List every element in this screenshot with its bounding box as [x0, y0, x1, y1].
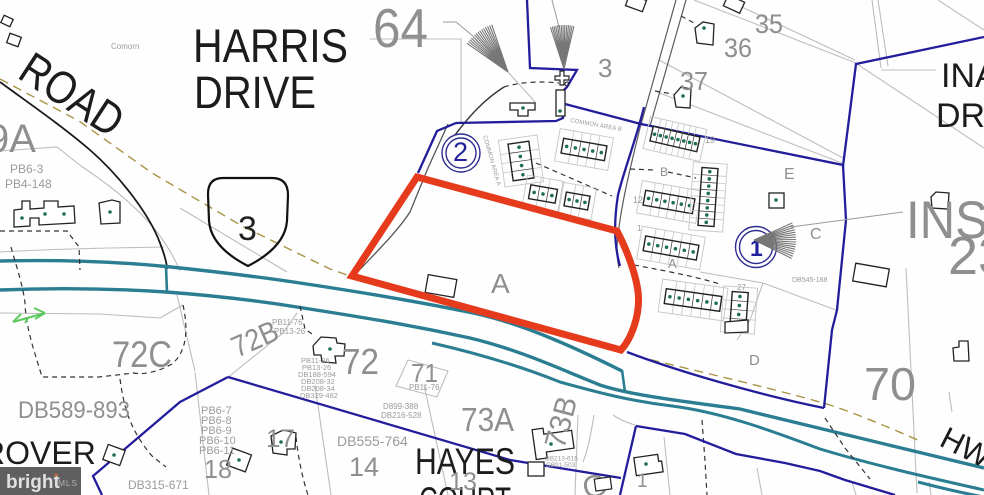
svg-text:2: 2: [453, 137, 468, 167]
svg-text:HARRIS: HARRIS: [193, 19, 348, 72]
svg-text:DB329-482: DB329-482: [300, 391, 338, 400]
svg-text:1: 1: [637, 224, 642, 233]
svg-text:ROVER: ROVER: [0, 435, 96, 471]
svg-text:D: D: [749, 352, 760, 369]
svg-text:E: E: [784, 166, 795, 183]
svg-text:14: 14: [349, 452, 379, 482]
svg-text:17: 17: [266, 425, 295, 453]
svg-text:35: 35: [755, 9, 783, 39]
svg-text:DRIVE: DRIVE: [194, 67, 316, 118]
svg-text:19: 19: [705, 135, 715, 145]
svg-text:A: A: [491, 268, 510, 299]
svg-text:D899-388: D899-388: [383, 402, 419, 411]
svg-text:64: 64: [373, 0, 428, 59]
svg-text:70: 70: [864, 358, 916, 410]
svg-text:3: 3: [238, 210, 257, 248]
svg-text:PB11-76: PB11-76: [409, 383, 440, 392]
svg-text:37: 37: [680, 66, 708, 96]
svg-text:36: 36: [724, 33, 752, 63]
svg-text:12: 12: [633, 195, 643, 205]
svg-text:DB216-528: DB216-528: [381, 411, 422, 420]
svg-text:PB13-26: PB13-26: [274, 327, 306, 336]
svg-text:bright: bright: [6, 472, 60, 493]
svg-text:23: 23: [948, 226, 984, 286]
svg-text:18: 18: [204, 454, 232, 484]
svg-text:72: 72: [342, 341, 379, 382]
svg-text:73A: 73A: [461, 401, 514, 438]
svg-text:DB555-764: DB555-764: [337, 433, 408, 449]
svg-text:PB11-76: PB11-76: [272, 318, 303, 327]
svg-text:PB6-11: PB6-11: [199, 445, 235, 457]
svg-text:9A: 9A: [0, 117, 36, 161]
svg-text:INA: INA: [941, 57, 984, 95]
svg-text:DB545-188: DB545-188: [792, 277, 828, 284]
svg-text:DB315-671: DB315-671: [128, 478, 189, 492]
svg-text:MLS: MLS: [58, 478, 78, 488]
svg-text:PB6-3: PB6-3: [10, 162, 44, 176]
svg-text:PB4-148: PB4-148: [5, 177, 52, 191]
svg-text:1: 1: [637, 471, 648, 492]
svg-text:3: 3: [598, 53, 612, 83]
svg-text:13: 13: [449, 468, 477, 495]
svg-text:B: B: [660, 165, 668, 179]
svg-text:C: C: [810, 226, 822, 243]
svg-text:27: 27: [737, 283, 746, 292]
svg-text:A: A: [668, 256, 677, 271]
svg-text:DRI: DRI: [936, 97, 984, 135]
svg-text:Comorn: Comorn: [111, 42, 139, 51]
svg-text:72C: 72C: [112, 334, 172, 375]
svg-text:DB589-893: DB589-893: [18, 397, 130, 424]
svg-text:DB91-503: DB91-503: [546, 462, 576, 469]
